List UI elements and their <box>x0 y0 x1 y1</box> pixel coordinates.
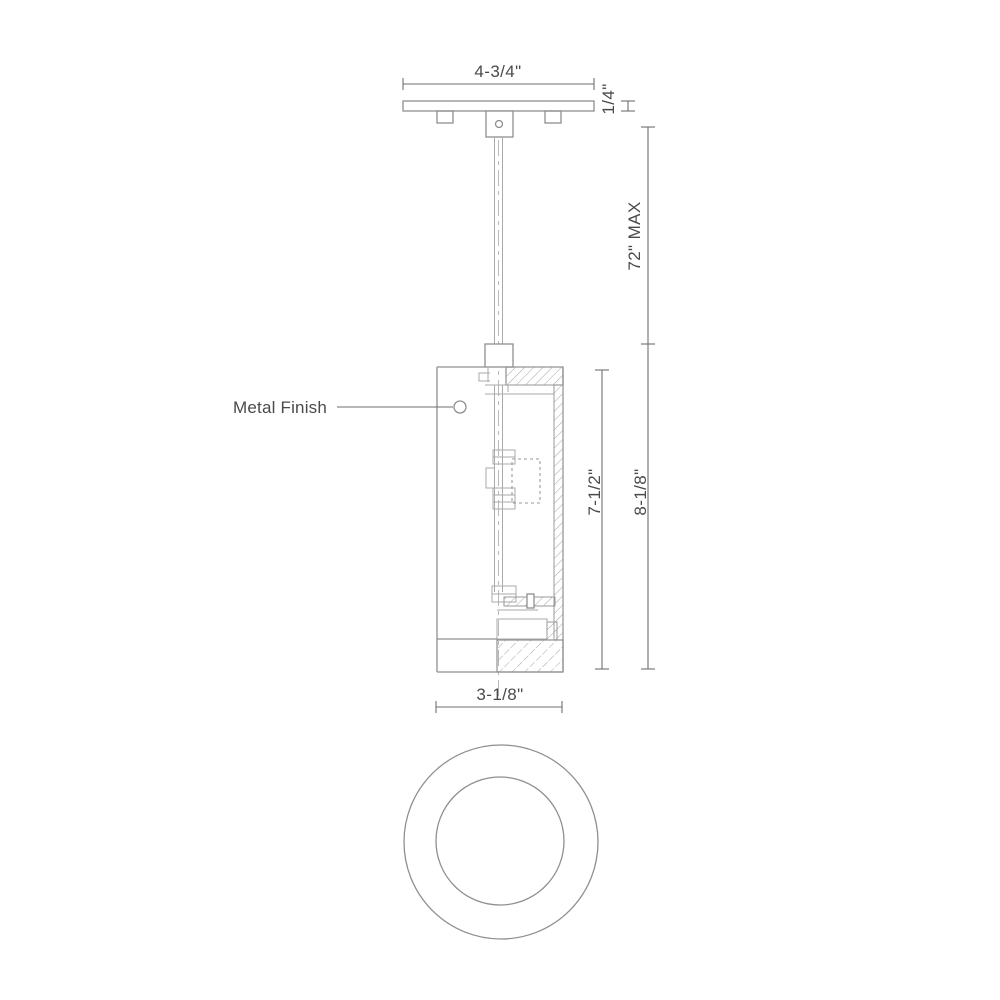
ceiling-canopy <box>403 101 594 137</box>
dim-canopy-thickness-label: 1/4" <box>599 83 618 114</box>
dim-overall-height-label: 8-1/8" <box>631 468 650 515</box>
bottom-cap-section <box>497 640 563 672</box>
metal-finish-label: Metal Finish <box>233 398 327 417</box>
retainer-screw <box>527 594 534 608</box>
canopy-left-tab <box>437 111 453 123</box>
dim-canopy-thickness: 1/4" <box>599 83 635 114</box>
dim-body-width-label: 3-1/8" <box>476 685 523 704</box>
fixture-body-section <box>437 367 563 672</box>
dim-suspension-and-overall: 72" MAX 8-1/8" <box>625 127 655 669</box>
canopy-right-tab <box>545 111 561 123</box>
fixture-spec-drawing: 4-3/4" 1/4" 72" MAX 8-1/8" 7-1/2" <box>0 0 1000 1000</box>
top-cap-section <box>485 367 563 385</box>
bottom-assembly <box>437 586 563 672</box>
dim-suspension-label: 72" MAX <box>625 201 644 270</box>
dim-body-width: 3-1/8" <box>436 685 562 713</box>
lamp-outline-dashed <box>512 459 540 503</box>
bottom-view-outer-circle <box>404 745 598 939</box>
lens-step-section <box>547 622 557 640</box>
dim-canopy-width-label: 4-3/4" <box>474 62 521 81</box>
bottom-view-inner-circle <box>436 777 564 905</box>
dim-body-height-label: 7-1/2" <box>585 468 604 515</box>
canopy-center-block <box>486 111 513 137</box>
front-elevation <box>403 101 594 700</box>
callout-target-circle <box>454 401 466 413</box>
dim-canopy-width: 4-3/4" <box>403 62 594 90</box>
drawing-canvas: 4-3/4" 1/4" 72" MAX 8-1/8" 7-1/2" <box>0 0 1000 1000</box>
lens-section <box>497 619 547 639</box>
dimensions: 4-3/4" 1/4" 72" MAX 8-1/8" 7-1/2" <box>403 62 655 713</box>
metal-finish-callout: Metal Finish <box>233 398 466 417</box>
canopy-plate <box>403 101 594 111</box>
dim-body-height: 7-1/2" <box>585 370 609 669</box>
bottom-view <box>404 745 598 939</box>
stem-connector-block <box>485 344 513 367</box>
